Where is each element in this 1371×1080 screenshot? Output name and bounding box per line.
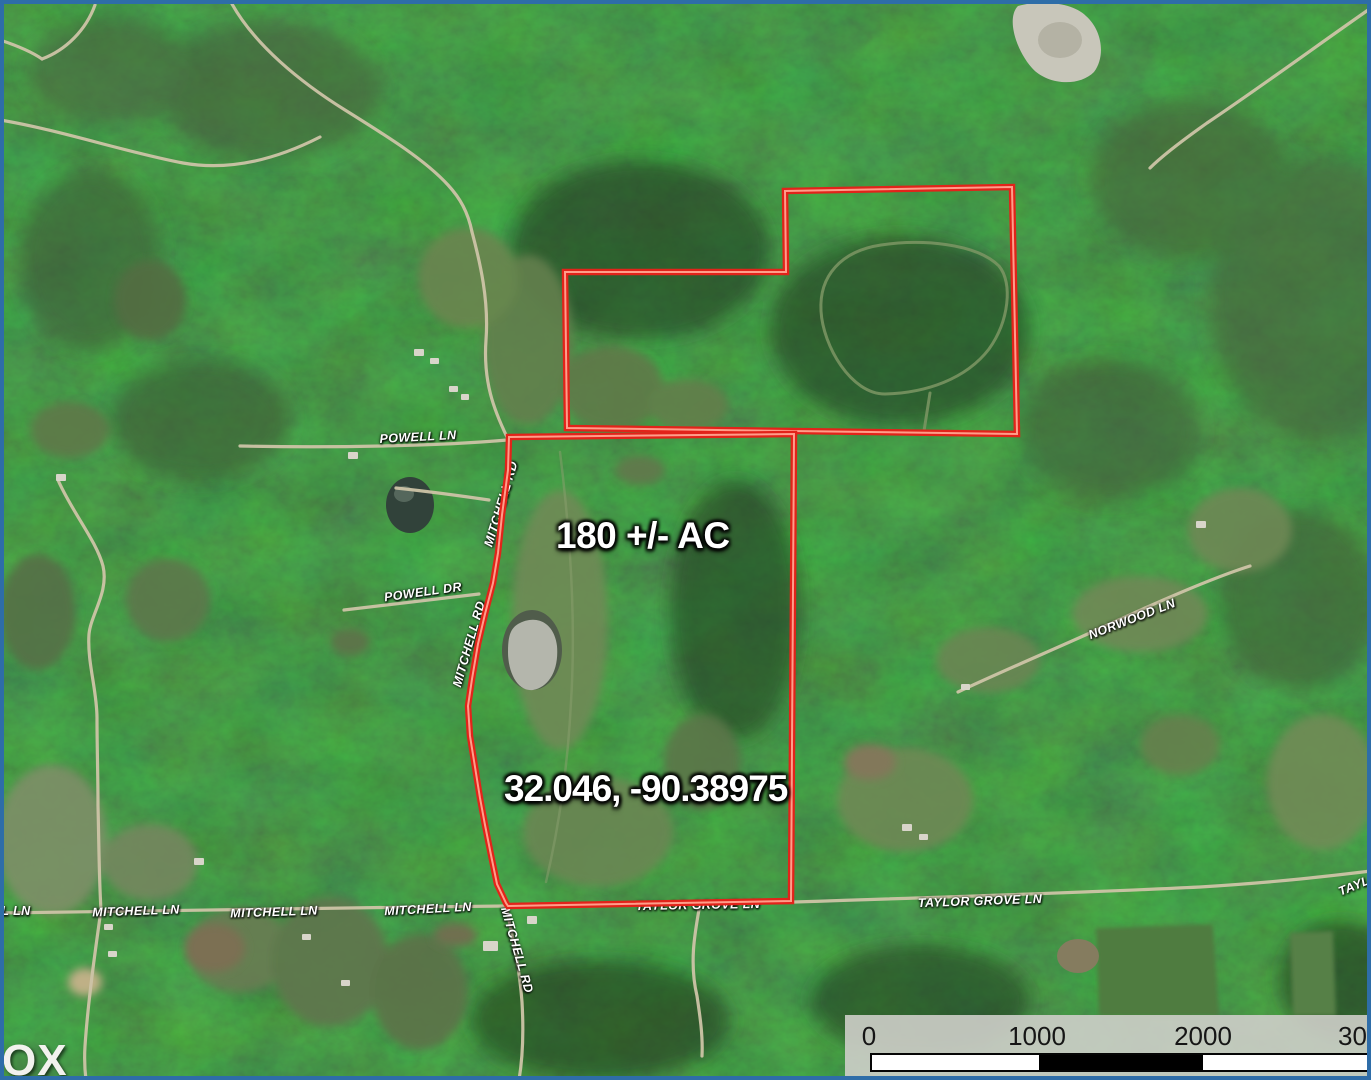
scale-tick-0: 0 (862, 1021, 876, 1052)
scale-segment-black (1039, 1055, 1203, 1070)
scale-tick-3000: 30 (1338, 1021, 1367, 1052)
acreage-label: 180 +/- AC (556, 515, 730, 557)
boundary-south-tract (468, 434, 794, 906)
watermark-text: OX (2, 1036, 68, 1080)
scale-segment-white-2 (1203, 1055, 1370, 1070)
coordinates-label: 32.046, -90.38975 (504, 768, 787, 810)
scale-tick-1000: 1000 (1008, 1021, 1066, 1052)
scale-bar-panel: 0 1000 2000 30 (845, 1015, 1371, 1080)
satellite-map: POWELL LNMITCHELL RDPOWELL DRMITCHELL RD… (0, 0, 1371, 1080)
scale-segment-white-1 (872, 1055, 1039, 1070)
boundary-north-tract (565, 187, 1017, 434)
scale-tick-2000: 2000 (1174, 1021, 1232, 1052)
scale-bar (870, 1053, 1371, 1072)
